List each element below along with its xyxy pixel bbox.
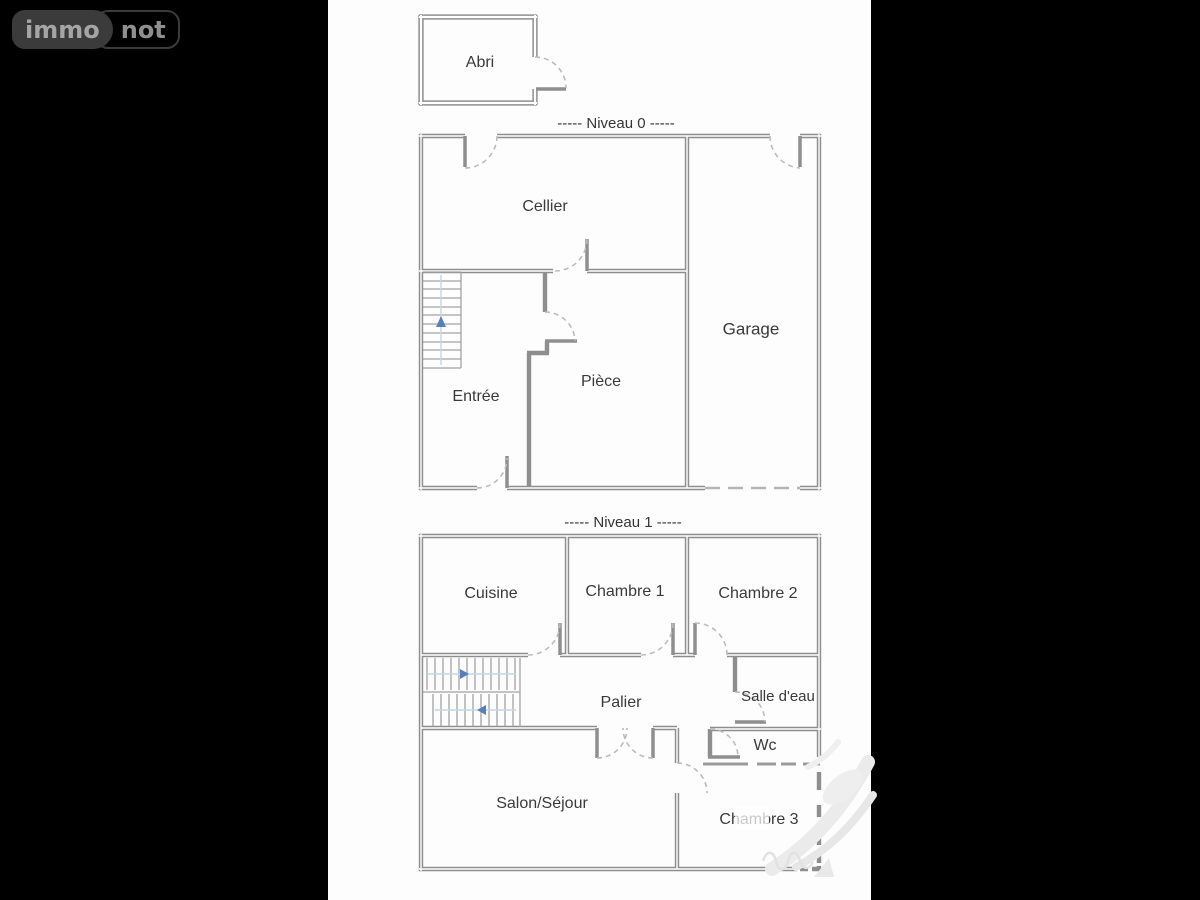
abri-door-arc xyxy=(535,57,566,88)
level0-door-leaves xyxy=(465,136,800,488)
room-label-cellier: Cellier xyxy=(522,198,568,215)
screenshot-root: Abri ----- Niveau 0 ----- Cellier Garage… xyxy=(0,0,1200,900)
room-label-wc: Wc xyxy=(753,737,776,754)
room-label-piece: Pièce xyxy=(581,373,621,390)
room-label-entree: Entrée xyxy=(452,388,499,405)
level0-stairs xyxy=(423,272,461,368)
level1-door-arcs xyxy=(528,623,765,793)
watermark-flourish xyxy=(735,742,873,877)
room-label-chambre2: Chambre 2 xyxy=(718,585,797,602)
level0-door-arcs xyxy=(465,136,800,488)
stairs-up-arrow xyxy=(436,316,446,327)
immonot-logo: immo not xyxy=(12,10,180,49)
logo-immo-segment: immo xyxy=(12,10,113,49)
room-label-chambre1: Chambre 1 xyxy=(585,583,664,600)
room-label-salle-eau: Salle d'eau xyxy=(741,688,815,705)
level0-title: ----- Niveau 0 ----- xyxy=(557,115,675,132)
room-label-salon: Salon/Séjour xyxy=(496,795,588,812)
room-label-palier: Palier xyxy=(601,694,643,711)
floorplan-drawing: Abri ----- Niveau 0 ----- Cellier Garage… xyxy=(0,0,1200,900)
level0-walls xyxy=(419,134,821,490)
level1-title: ----- Niveau 1 ----- xyxy=(564,514,682,531)
level1-stairs xyxy=(423,658,520,727)
room-label-cuisine: Cuisine xyxy=(464,585,517,602)
room-label-abri: Abri xyxy=(466,54,494,71)
room-label-garage: Garage xyxy=(723,319,780,338)
